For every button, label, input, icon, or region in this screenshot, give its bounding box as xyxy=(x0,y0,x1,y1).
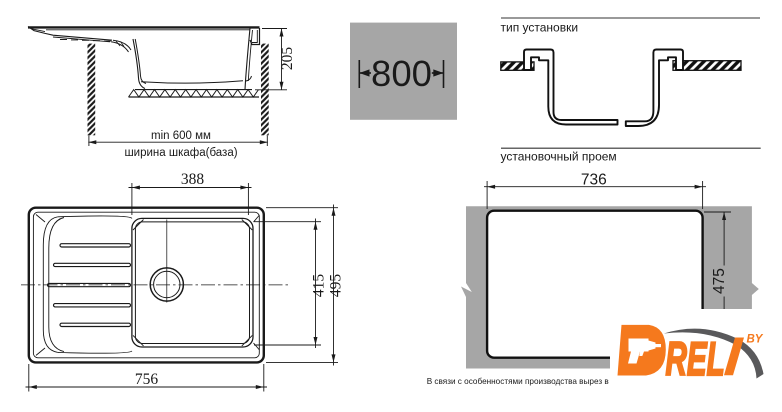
svg-text:тип установки: тип установки xyxy=(501,21,579,35)
svg-text:REL: REL xyxy=(666,333,725,386)
svg-text:800: 800 xyxy=(371,53,432,94)
svg-text:205: 205 xyxy=(279,47,296,71)
svg-text:388: 388 xyxy=(181,171,205,188)
svg-text:756: 756 xyxy=(135,371,159,388)
svg-text:установочный проем: установочный проем xyxy=(501,150,617,164)
svg-text:415: 415 xyxy=(310,274,327,298)
svg-text:736: 736 xyxy=(581,172,607,189)
svg-text:BY: BY xyxy=(747,334,764,346)
svg-text:ширина шкафа(база): ширина шкафа(база) xyxy=(124,147,237,159)
svg-text:495: 495 xyxy=(328,274,345,298)
svg-text:475: 475 xyxy=(711,268,728,294)
svg-text:min 600 мм: min 600 мм xyxy=(151,130,211,142)
